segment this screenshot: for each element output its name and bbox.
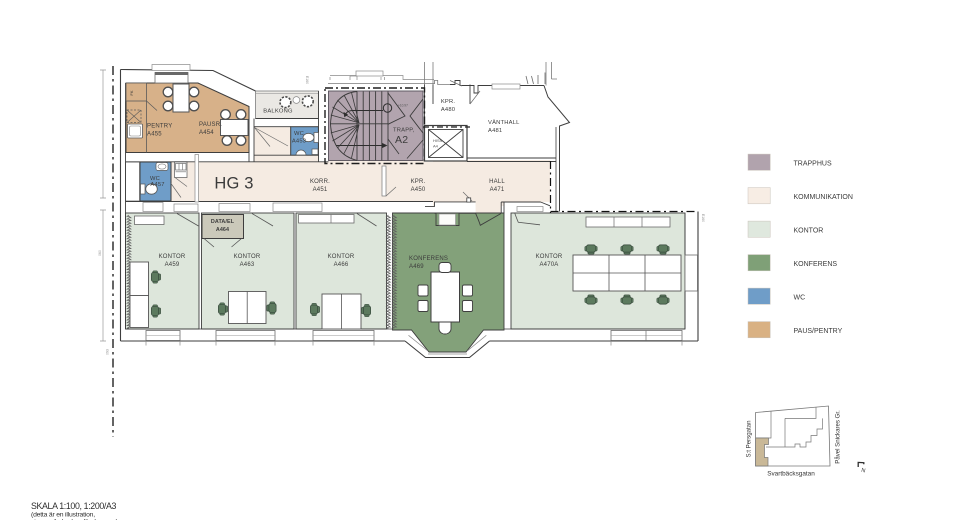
svg-text:A454: A454 — [199, 130, 214, 136]
svg-text:A451: A451 — [313, 187, 328, 193]
svg-text:A471: A471 — [490, 187, 505, 193]
svg-text:KONTOR: KONTOR — [794, 227, 824, 234]
svg-text:A459: A459 — [165, 262, 180, 268]
svg-text:A464: A464 — [216, 227, 229, 233]
svg-text:A470A: A470A — [539, 262, 558, 268]
svg-text:FK: FK — [129, 90, 134, 95]
svg-text:KONTOR: KONTOR — [536, 254, 563, 260]
svg-text:PENTRY: PENTRY — [147, 124, 172, 130]
svg-text:KONTOR: KONTOR — [234, 254, 261, 260]
svg-text:KPR.: KPR. — [441, 99, 456, 105]
svg-text:A453: A453 — [292, 139, 306, 145]
svg-text:HISS: HISS — [433, 138, 443, 143]
svg-text:(detta är en illustration,: (detta är en illustration, — [31, 511, 95, 518]
svg-text:PAUS/PENTRY: PAUS/PENTRY — [794, 328, 843, 335]
svg-text:TRAPP,: TRAPP, — [393, 128, 415, 134]
svg-text:SKALA 1:100, 1:200/A3: SKALA 1:100, 1:200/A3 — [31, 501, 117, 511]
svg-text:A463: A463 — [240, 262, 255, 268]
svg-text:HALL: HALL — [489, 179, 505, 185]
svg-text:HG 3: HG 3 — [214, 175, 253, 193]
svg-text:KONFERENS: KONFERENS — [409, 256, 448, 262]
svg-text:DATA/EL: DATA/EL — [211, 219, 235, 225]
svg-text:A466: A466 — [334, 262, 349, 268]
svg-text:KONTOR: KONTOR — [328, 254, 355, 260]
svg-text:PAUSR.: PAUSR. — [199, 122, 222, 128]
svg-text:A455: A455 — [147, 132, 162, 138]
svg-text:VÄNTHALL: VÄNTHALL — [488, 119, 520, 126]
svg-text:KORR.: KORR. — [310, 179, 330, 185]
svg-text:KONTOR: KONTOR — [159, 254, 186, 260]
svg-text:E160: E160 — [701, 214, 705, 222]
svg-text:WC: WC — [294, 131, 304, 137]
svg-text:A2: A2 — [395, 134, 408, 146]
svg-text:KPR.: KPR. — [411, 179, 426, 185]
svg-text:093: 093 — [106, 349, 110, 355]
svg-text:060: 060 — [98, 250, 102, 256]
svg-text:BALKONG: BALKONG — [263, 109, 293, 115]
svg-text:A457: A457 — [150, 182, 164, 188]
svg-text:KOMMUNIKATION: KOMMUNIKATION — [794, 194, 853, 201]
svg-text:A481: A481 — [488, 128, 502, 134]
svg-text:TRAPPHUS: TRAPPHUS — [794, 160, 832, 167]
svg-text:+10.97: +10.97 — [398, 104, 408, 108]
svg-text:Svartbäcksgatan: Svartbäcksgatan — [767, 471, 815, 478]
svg-text:A4: A4 — [433, 144, 439, 149]
svg-text:WC: WC — [794, 294, 806, 301]
svg-text:A469: A469 — [409, 264, 424, 270]
svg-text:A480: A480 — [441, 107, 455, 113]
svg-text:A450: A450 — [411, 187, 426, 193]
svg-text:Påvel Snickares Gr.: Påvel Snickares Gr. — [835, 410, 842, 464]
svg-text:KONFERENS: KONFERENS — [794, 261, 838, 268]
svg-text:E160: E160 — [305, 76, 309, 84]
svg-text:S:t Persgatan: S:t Persgatan — [746, 421, 753, 458]
